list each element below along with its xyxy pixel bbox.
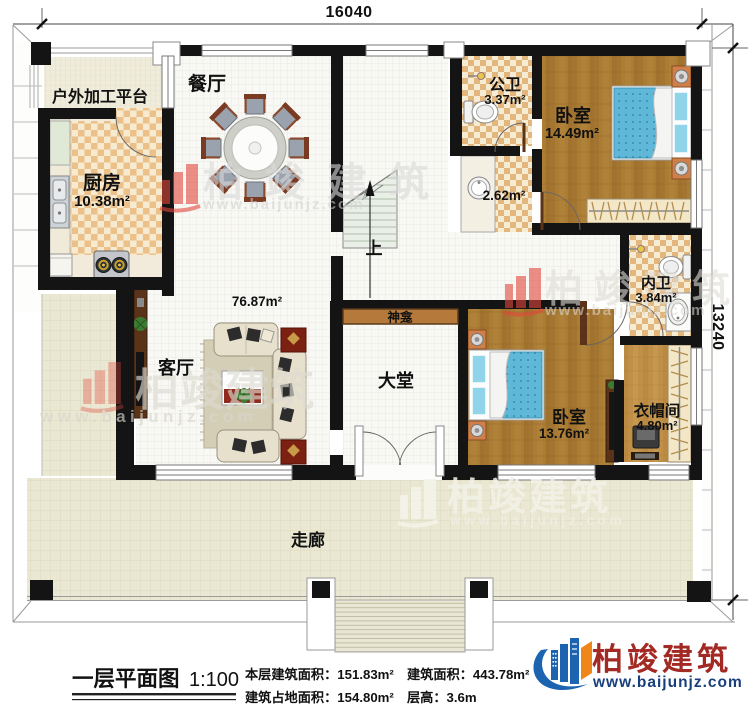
svg-text:餐厅: 餐厅 xyxy=(188,72,226,95)
svg-text:3.84m²: 3.84m² xyxy=(635,290,677,305)
svg-text:www.baijunjz.com: www.baijunjz.com xyxy=(592,674,743,691)
svg-text:大堂: 大堂 xyxy=(378,370,414,391)
svg-text:卧室: 卧室 xyxy=(555,105,591,126)
svg-text:建筑面积：443.78m²: 建筑面积：443.78m² xyxy=(407,666,530,682)
svg-text:10.38m²: 10.38m² xyxy=(74,193,130,210)
svg-text:13240: 13240 xyxy=(709,304,726,351)
svg-text:建筑占地面积：154.80m²: 建筑占地面积：154.80m² xyxy=(245,689,394,705)
svg-text:走廊: 走廊 xyxy=(291,530,325,550)
svg-text:16040: 16040 xyxy=(326,4,373,21)
svg-text:76.87m²: 76.87m² xyxy=(232,294,283,309)
svg-text:本层建筑面积：151.83m²: 本层建筑面积：151.83m² xyxy=(245,666,394,682)
svg-text:层高：3.6m: 层高：3.6m xyxy=(407,689,477,705)
svg-text:上: 上 xyxy=(366,239,383,258)
svg-text:柏竣建筑: 柏竣建筑 xyxy=(592,642,732,677)
svg-text:www.baijunjz.com: www.baijunjz.com xyxy=(202,196,364,213)
svg-text:www.baijunjz.com: www.baijunjz.com xyxy=(449,512,625,528)
svg-text:一层平面图: 一层平面图 xyxy=(72,667,180,691)
svg-text:4.80m²: 4.80m² xyxy=(636,418,678,433)
svg-text:3.37m²: 3.37m² xyxy=(484,92,526,107)
svg-text:神龛: 神龛 xyxy=(387,310,413,325)
svg-text:客厅: 客厅 xyxy=(158,357,194,378)
svg-text:www.baijunjz.com: www.baijunjz.com xyxy=(39,407,257,426)
svg-text:厨房: 厨房 xyxy=(83,171,121,194)
svg-text:1:100: 1:100 xyxy=(189,669,239,691)
svg-text:卧室: 卧室 xyxy=(552,407,586,427)
svg-text:13.76m²: 13.76m² xyxy=(539,426,590,441)
svg-text:2.62m²: 2.62m² xyxy=(483,188,526,203)
svg-text:www.baijunjz.com: www.baijunjz.com xyxy=(544,302,706,319)
svg-text:户外加工平台: 户外加工平台 xyxy=(52,87,148,106)
svg-text:14.49m²: 14.49m² xyxy=(545,126,599,142)
